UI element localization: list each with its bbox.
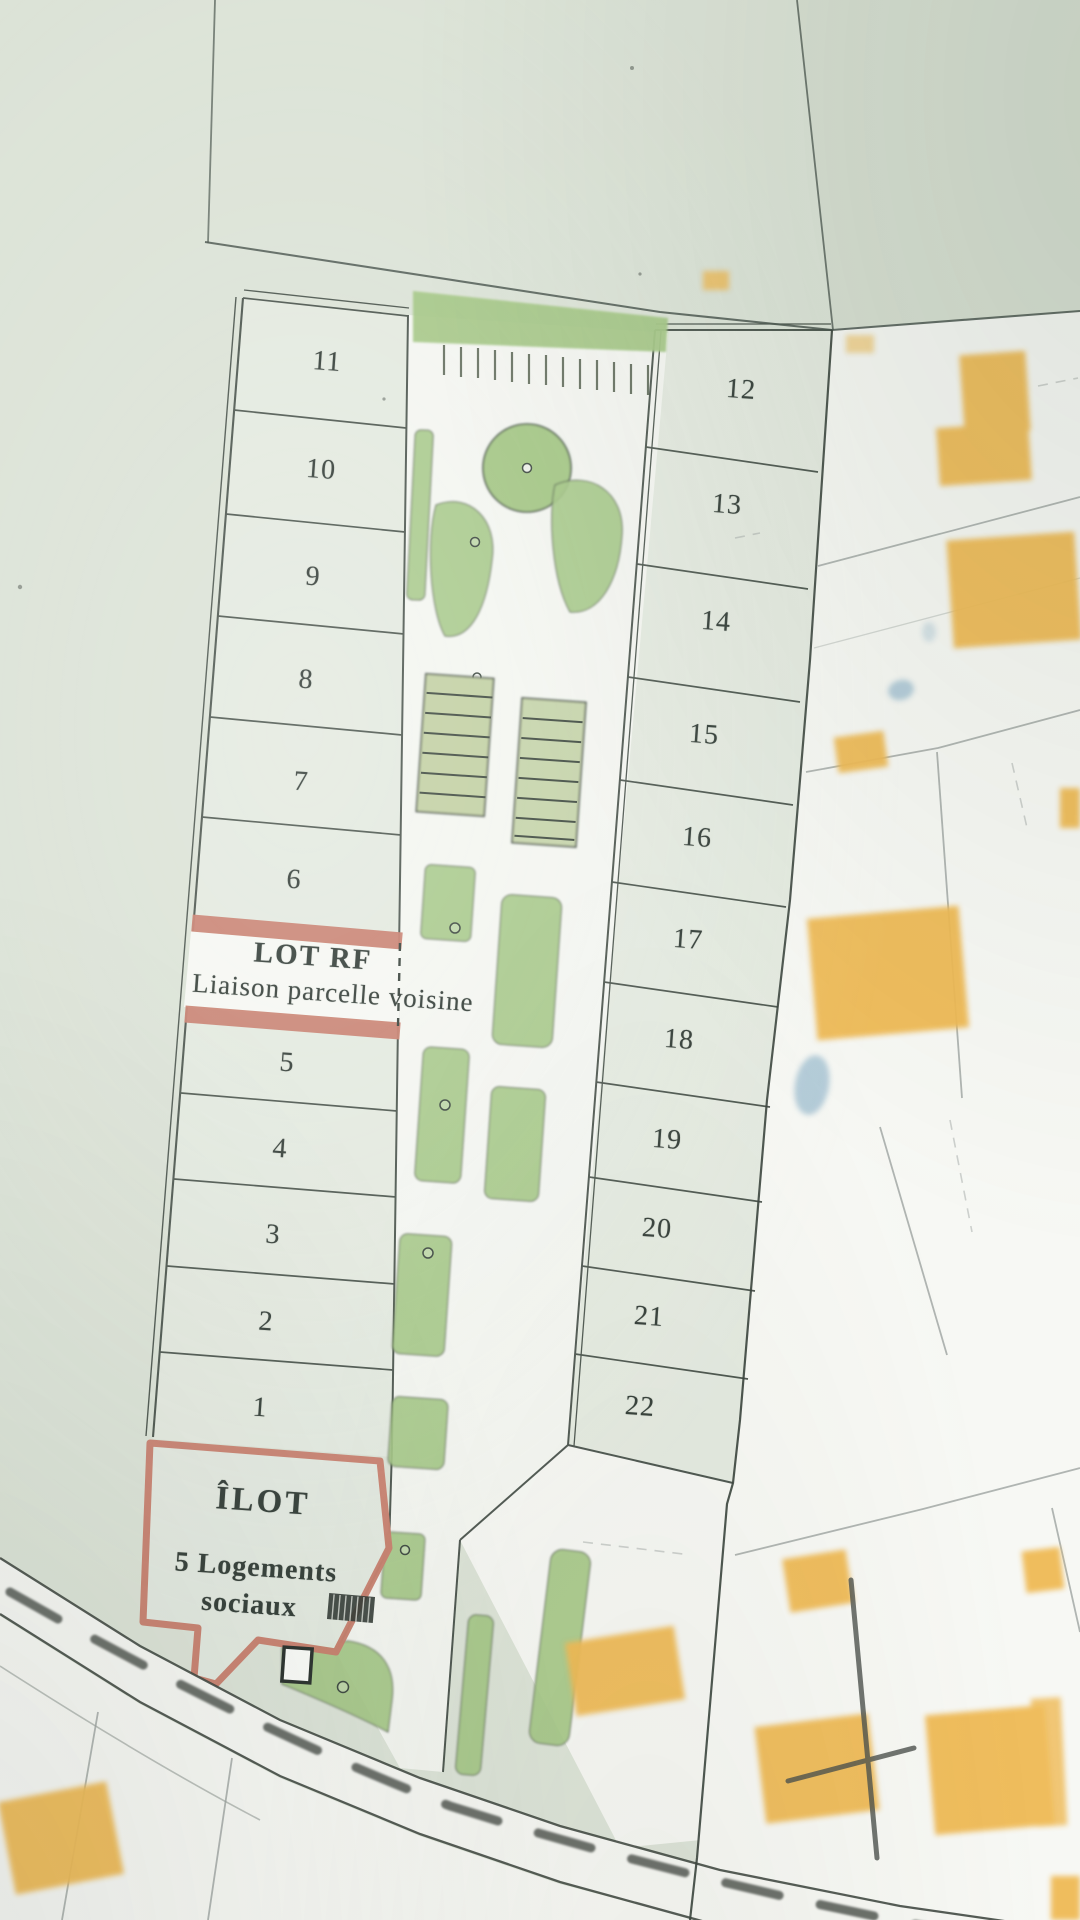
lot-label-12: 12 [725, 373, 757, 407]
lot-label-13: 13 [711, 488, 743, 522]
scanned-subdivision-plan: 11 10 9 8 7 6 5 4 3 2 1 12 13 14 15 16 1… [0, 0, 1080, 1920]
lot-label-1: 1 [251, 1392, 268, 1425]
lot-label-14: 14 [700, 605, 732, 639]
lot-label-21: 21 [633, 1300, 665, 1334]
lot-label-2: 2 [257, 1306, 274, 1339]
ilot-title: ÎLOT [215, 1480, 312, 1524]
lot-label-17: 17 [672, 923, 704, 957]
lot-label-16: 16 [681, 821, 713, 855]
ilot-line-2: sociaux [200, 1586, 298, 1625]
lot-label-4: 4 [271, 1133, 288, 1166]
far-parcel-tint [797, 0, 1080, 329]
lot-label-3: 3 [264, 1219, 281, 1252]
lot-label-15: 15 [688, 718, 720, 752]
lot-label-7: 7 [292, 766, 309, 799]
parking-bay-east [512, 698, 586, 847]
lot-label-8: 8 [297, 664, 314, 697]
lot-label-19: 19 [651, 1123, 683, 1157]
lot-label-10: 10 [305, 453, 337, 487]
lot-label-11: 11 [311, 345, 342, 379]
lot-label-18: 18 [663, 1023, 695, 1057]
crosswalk-hatch [327, 1593, 375, 1623]
site-plan-drawing [0, 0, 1080, 1920]
lot-label-5: 5 [278, 1047, 295, 1080]
parking-bay-west [416, 674, 493, 816]
lot-label-6: 6 [285, 864, 302, 897]
tree-icon [523, 464, 532, 473]
small-building-outline [282, 1647, 312, 1683]
lot-label-20: 20 [641, 1212, 673, 1246]
lot-label-9: 9 [304, 561, 321, 594]
lot-label-22: 22 [624, 1390, 656, 1424]
